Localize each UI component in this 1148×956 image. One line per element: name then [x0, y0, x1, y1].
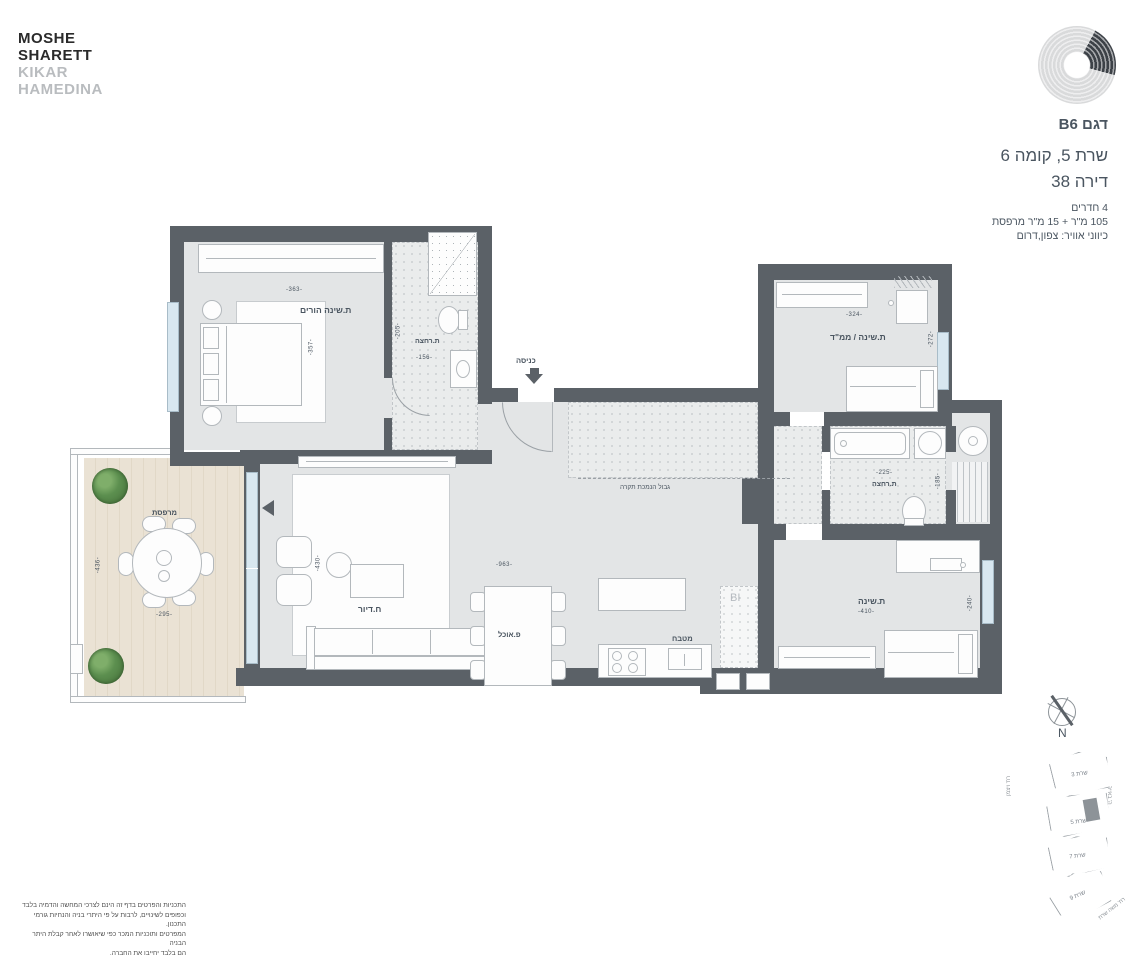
living-label: ח.דיור — [358, 604, 381, 614]
balcony-table-deco-1 — [156, 550, 172, 566]
mamad-blanket-line — [850, 386, 916, 387]
dining-chair-6 — [550, 660, 566, 680]
balcony-depth-dim: -436- — [95, 557, 101, 574]
water-heater-inner — [968, 436, 978, 446]
bedroom3-stool — [960, 562, 966, 568]
mamad-closet — [776, 282, 868, 308]
kitchen-faucet — [684, 654, 685, 666]
brand-line-2: SHARETT — [18, 47, 103, 64]
mamad-label: ת.שינה / ממ"ד — [830, 332, 886, 342]
toilet2-tank — [904, 518, 924, 526]
coffee-table — [350, 564, 404, 598]
wall-bath2-laundry-upper — [946, 426, 956, 452]
living-depth-dim: -430- — [315, 555, 321, 572]
bedroom3-width-dim: -410- — [858, 609, 875, 615]
balcony-planter-box — [70, 644, 83, 674]
bathroom2-label: ת.רחצה — [872, 481, 897, 488]
bedroom3-desk-drawer — [930, 558, 962, 571]
wall-bath1-divider-upper — [384, 242, 392, 378]
area-size: 105 מ"ר + 15 מ"ר מרפסת — [992, 215, 1108, 229]
balcony-width-dim: -295- — [156, 612, 173, 618]
disclaimer-line-1: התכניות והפרטים בדף זה הינם לצרכי המחשה … — [16, 901, 186, 911]
living-dining-width-dim: -963- — [496, 562, 513, 568]
wall-kitchen-leg-divider — [742, 478, 758, 524]
mamad-desk — [896, 290, 928, 324]
master-blanket-line — [226, 326, 227, 403]
building-3-label: שרת 7 — [1069, 853, 1086, 861]
balcony-table-deco-2 — [158, 570, 170, 582]
dining-chair-5 — [550, 626, 566, 646]
master-nightstand-2 — [202, 406, 222, 426]
building-4-label: שרת 9 — [1069, 890, 1087, 902]
balcony-railing-top — [70, 448, 172, 455]
stove-burner-2 — [628, 651, 638, 661]
armchair-1 — [276, 536, 312, 568]
mamad-desk-stool — [888, 300, 894, 306]
brand-line-3: KIKAR — [18, 64, 103, 81]
shower-diagonal — [430, 234, 475, 294]
bedroom3-closet-line — [784, 657, 870, 658]
bedroom3-label: ת.שינה — [858, 596, 885, 606]
street-label-left: רח' ויצמן — [1006, 776, 1012, 796]
wall-corridor-top — [554, 388, 758, 402]
wall-bedroom3-left — [758, 524, 774, 670]
wall-mamad-bottom-right — [824, 412, 952, 426]
kitchen-label: מטבח — [672, 634, 693, 643]
balcony-plant-1 — [92, 468, 128, 504]
sofa-back — [314, 656, 490, 670]
balcony-label: מרפסת — [152, 508, 177, 517]
bathroom1-label: ת.רחצה — [415, 338, 440, 345]
master-pillow-3 — [203, 379, 219, 401]
wall-balcony-top — [170, 452, 260, 466]
brand-line-4: HAMEDINA — [18, 81, 103, 98]
wall-mamad-bottom-left — [774, 412, 790, 426]
sofa-seat-div-2 — [430, 630, 431, 654]
stove-burner-1 — [612, 651, 622, 661]
mamad-depth-dim: -272- — [928, 331, 934, 348]
corridor-floor — [568, 402, 758, 478]
floor-plan-page: MOSHE SHARETT KIKAR HAMEDINA דגם B6 שרת … — [0, 0, 1148, 956]
building-2-label: שרת 5 — [1070, 818, 1087, 826]
stove-burner-3 — [612, 663, 622, 673]
wall-entry-left-stub — [492, 388, 518, 402]
laundry-grille — [952, 462, 988, 522]
mamad-closet-line — [782, 294, 862, 295]
highlighted-apartment-unit — [1083, 798, 1101, 822]
master-window — [167, 302, 179, 412]
street-label-right: ה' באייר — [1106, 786, 1112, 805]
dining-chair-4 — [550, 592, 566, 612]
bedroom3-blanket-line — [888, 652, 954, 653]
entry-door-leaf — [552, 402, 553, 452]
apartment-number: דירה 38 — [992, 169, 1108, 195]
shaft-box-1 — [716, 673, 740, 690]
bedroom3-pillow — [958, 634, 973, 674]
siteplan-building-1: שרת 3 — [1048, 746, 1114, 801]
armchair-2 — [276, 574, 312, 606]
bi-shaft-label: BI — [730, 592, 740, 604]
vanity2-sink — [918, 431, 942, 455]
balcony-plant-2 — [88, 648, 124, 684]
stove-burner-4 — [628, 663, 638, 673]
entrance-label: כניסה — [516, 356, 536, 365]
toilet1-tank — [458, 310, 468, 330]
bathroom1-depth-dim: -205- — [395, 323, 401, 340]
kitchen-sink — [668, 648, 702, 670]
entrance-arrow-icon — [525, 374, 543, 384]
bedroom3-depth-dim: -240- — [967, 595, 973, 612]
mamad-width-dim: -324- — [846, 312, 863, 318]
tv-console — [298, 456, 456, 468]
mamad-pillow — [920, 370, 934, 408]
mamad-window — [937, 332, 949, 390]
master-nightstand-1 — [202, 300, 222, 320]
wall-bath2-left-upper — [822, 426, 830, 452]
tv-line — [306, 461, 448, 462]
master-depth-dim: -357- — [308, 339, 314, 356]
bathroom2-width-dim: -225- — [876, 470, 893, 476]
section-arrow-icon — [262, 500, 274, 516]
balcony-railing-bottom — [70, 696, 246, 703]
sofa-seat-div-1 — [372, 630, 373, 654]
brand-line-1: MOSHE — [18, 30, 103, 47]
mamad-chair-hatch — [894, 276, 932, 288]
balcony-door-mullion — [246, 568, 258, 569]
kitchen-island — [598, 578, 686, 611]
rooms-count: 4 חדרים — [992, 201, 1108, 215]
wall-bedroom3-top-right — [822, 524, 986, 540]
master-closet-line — [206, 258, 376, 259]
north-label: N — [1058, 726, 1067, 740]
building-1-label: שרת 3 — [1071, 770, 1088, 778]
brand-donut-logo-icon — [1038, 26, 1116, 104]
ceiling-dashed-line — [578, 478, 790, 479]
air-directions: כיווני אוויר: צפון,דרום — [992, 229, 1108, 243]
disclaimer-line-2: וכפופים לשינויים, לרבות על פי היתרי בניה… — [16, 911, 186, 930]
model-title: דגם B6 — [992, 116, 1108, 133]
disclaimer-text: התכניות והפרטים בדף זה הינם לצרכי המחשה … — [16, 901, 186, 956]
dining-label: פ.אוכל — [498, 630, 521, 639]
wall-laundry-right — [990, 400, 1002, 538]
toilet1-bowl — [438, 306, 460, 334]
building-floor: שרת 5, קומה 6 — [992, 143, 1108, 169]
bathtub-drain — [840, 440, 847, 447]
brand-logo-text: MOSHE SHARETT KIKAR HAMEDINA — [18, 30, 103, 98]
apartment-header: דגם B6 שרת 5, קומה 6 דירה 38 4 חדרים 105… — [992, 116, 1108, 243]
siteplan-building-3: שרת 7 — [1047, 830, 1114, 880]
bathroom2-depth-dim: -185- — [935, 473, 941, 490]
vanity1-sink — [456, 360, 470, 378]
wall-hall-leg-left — [758, 426, 774, 524]
sofa-seats — [314, 628, 490, 656]
master-bedroom-label: ת.שינה הורים — [300, 305, 351, 315]
siteplan-building-2: שרת 5 — [1045, 789, 1113, 839]
master-pillow-1 — [203, 327, 219, 349]
shaft-box-2 — [746, 673, 770, 690]
master-pillow-2 — [203, 353, 219, 375]
coffee-table-round — [326, 552, 352, 578]
disclaimer-line-4: הם בלבד יחייבו את החברה. — [16, 949, 186, 956]
wall-top-block-right — [478, 226, 492, 404]
bedroom3-window — [982, 560, 994, 624]
wall-bedroom3-top-left — [774, 524, 786, 540]
ceiling-note: גבול הנמכת תקרה — [620, 484, 670, 491]
disclaimer-line-3: המפרטים ותוכניות המכר כפי שיאושרו לאחר ק… — [16, 930, 186, 949]
master-width-dim: -363- — [286, 287, 303, 293]
wall-mamad-left — [758, 264, 774, 426]
bathroom1-width-dim: -156- — [416, 355, 433, 361]
